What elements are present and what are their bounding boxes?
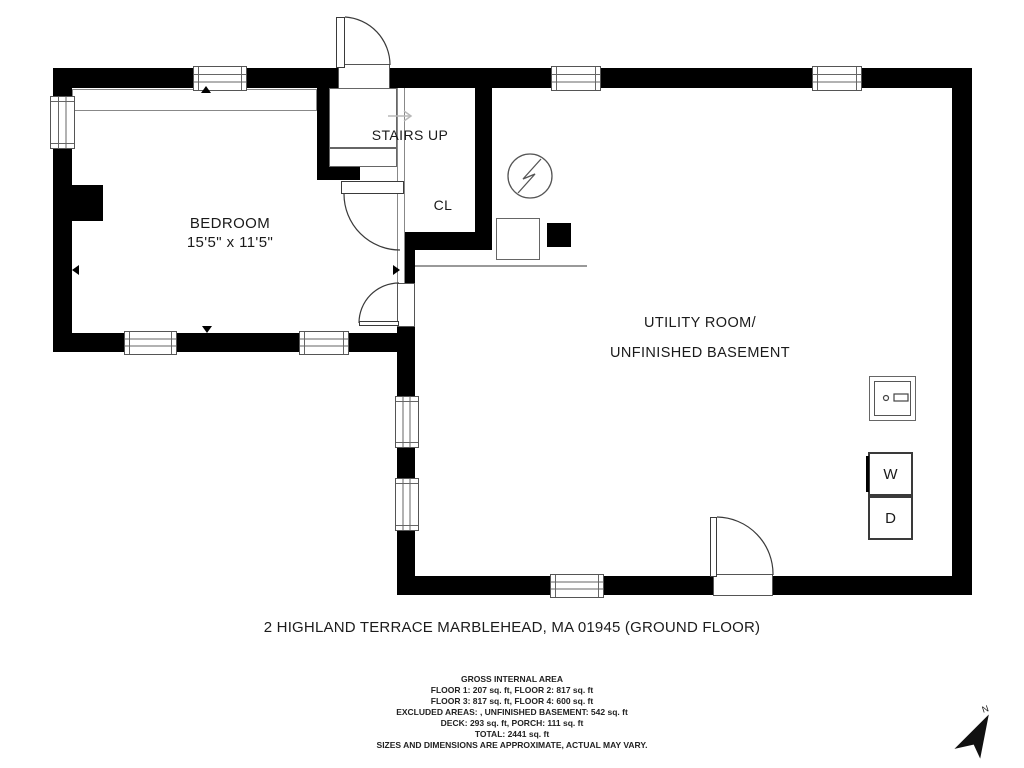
- wall-segment: [397, 576, 972, 595]
- wall-segment: [317, 166, 360, 180]
- window-symbol: [551, 66, 601, 91]
- bedroom-label-block: BEDROOM 15'5" x 11'5": [130, 214, 330, 252]
- utility-room-label-block: UTILITY ROOM/ UNFINISHED BASEMENT: [550, 308, 850, 368]
- door-leaf: [336, 17, 345, 68]
- equipment-box: [496, 218, 540, 260]
- wall-segment: [53, 333, 415, 352]
- door-arc: [344, 194, 400, 250]
- door-leaf: [341, 181, 404, 194]
- area-summary-disclaimer: SIZES AND DIMENSIONS ARE APPROXIMATE, AC…: [0, 740, 1024, 751]
- window-symbol: [193, 66, 247, 91]
- door-opening: [397, 283, 415, 327]
- bedroom-dimensions: 15'5" x 11'5": [130, 233, 330, 252]
- electrical-panel-icon: [508, 154, 552, 198]
- door-leaf: [359, 321, 399, 326]
- plan-title: 2 HIGHLAND TERRACE MARBLEHEAD, MA 01945 …: [0, 619, 1024, 636]
- door-arc: [359, 283, 399, 323]
- area-summary-line: FLOOR 3: 817 sq. ft, FLOOR 4: 600 sq. ft: [0, 696, 1024, 707]
- stair-landing: [329, 148, 397, 167]
- wall-segment: [952, 68, 972, 595]
- wall-segment: [397, 352, 415, 595]
- dimension-tick-left-icon: [72, 265, 79, 275]
- support-post: [547, 223, 571, 247]
- area-summary-line: TOTAL: 2441 sq. ft: [0, 729, 1024, 740]
- washer-wall-tick: [866, 456, 869, 492]
- door-leaf: [710, 517, 717, 577]
- area-summary-line: DECK: 293 sq. ft, PORCH: 111 sq. ft: [0, 718, 1024, 729]
- dryer: D: [868, 496, 913, 540]
- built-in-band: [72, 89, 317, 111]
- wall-segment: [405, 250, 415, 283]
- window-symbol: [550, 574, 604, 598]
- utility-room-name-line1: UTILITY ROOM/: [550, 308, 850, 338]
- window-symbol: [395, 396, 419, 448]
- dryer-label: D: [885, 510, 896, 527]
- window-symbol: [50, 96, 75, 149]
- washer: W: [868, 452, 913, 496]
- area-summary: GROSS INTERNAL AREA FLOOR 1: 207 sq. ft,…: [0, 674, 1024, 751]
- window-symbol: [124, 331, 177, 355]
- wall-segment: [397, 327, 415, 352]
- area-summary-heading: GROSS INTERNAL AREA: [0, 674, 1024, 685]
- wall-segment: [390, 68, 972, 88]
- area-summary-line: EXCLUDED AREAS: , UNFINISHED BASEMENT: 5…: [0, 707, 1024, 718]
- wall-segment: [475, 88, 492, 250]
- stairs-label: STAIRS UP: [330, 127, 490, 143]
- door-opening: [713, 574, 773, 596]
- window-symbol: [395, 478, 419, 531]
- wall-segment: [405, 232, 492, 250]
- window-symbol: [299, 331, 349, 355]
- counter-line: [415, 265, 587, 267]
- door-arc: [345, 17, 390, 65]
- bedroom-name: BEDROOM: [130, 214, 330, 233]
- window-symbol: [812, 66, 862, 91]
- area-summary-line: FLOOR 1: 207 sq. ft, FLOOR 2: 817 sq. ft: [0, 685, 1024, 696]
- door-opening: [338, 64, 390, 91]
- door-arc: [717, 517, 773, 575]
- closet-label: CL: [423, 197, 463, 213]
- furnace-door: [874, 381, 911, 416]
- dimension-tick-down-icon: [202, 326, 212, 333]
- chimney-pier: [72, 185, 103, 221]
- washer-label: W: [883, 466, 897, 483]
- utility-room-name-line2: UNFINISHED BASEMENT: [550, 338, 850, 368]
- floor-plan: W D BEDROOM 15'5" x 11'5": [0, 0, 1024, 768]
